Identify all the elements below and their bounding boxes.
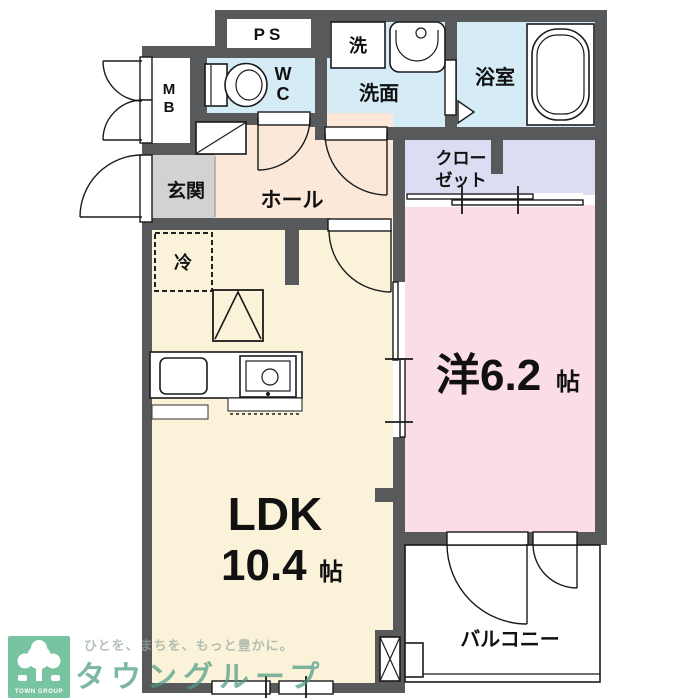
balcony-door-jamb-left <box>447 532 528 545</box>
wall-hall-bottom <box>142 218 330 230</box>
bathroom-door <box>445 60 456 115</box>
watermark-brand: タウングループ <box>75 661 325 694</box>
label-ldk: LDK <box>228 488 323 540</box>
label-bathroom: 浴室 <box>475 65 515 89</box>
shoe-cabinet <box>196 122 246 154</box>
mb-door-jamb-bottom <box>140 100 152 143</box>
wall-closet-divider <box>491 140 503 174</box>
label-balcony: バルコニー <box>460 628 560 651</box>
wall-right <box>595 10 607 545</box>
wall-mb-top <box>142 46 227 58</box>
label-washroom: 洗面 <box>359 82 399 105</box>
ldk-floor <box>152 218 393 683</box>
label-ldk-size: 10.4 <box>221 541 307 590</box>
label-mb-line1: M <box>163 81 176 98</box>
wash-basin <box>390 22 445 72</box>
washroom-door-jamb <box>325 127 387 140</box>
label-ldk-unit: 帖 <box>319 559 343 586</box>
wall-ldk-western-upper <box>393 127 405 282</box>
counter-side-shelf <box>152 405 208 419</box>
mb-door-swing-top <box>103 61 142 101</box>
bathtub <box>527 24 594 125</box>
watermark-logo-text: TOWN GROUP <box>15 688 63 695</box>
mb-door-swing-bottom <box>103 100 142 140</box>
label-mb-line2: B <box>164 99 175 116</box>
label-closet-line1: クロー <box>436 149 487 168</box>
entrance-door-jamb <box>140 155 152 222</box>
balcony-door-jamb-right <box>533 532 577 545</box>
label-hall: ホール <box>261 189 324 212</box>
balcony-outline <box>405 545 600 682</box>
watermark-tagline: ひとを、まちを、もっと豊かに。 <box>84 638 294 653</box>
label-closet-line2: ゼット <box>436 170 487 190</box>
label-wc-line2: C <box>277 84 290 104</box>
wall-ldk-western-lower <box>393 437 405 532</box>
counter-front <box>228 398 302 411</box>
label-entrance: 玄関 <box>167 179 205 202</box>
label-washer: 洗 <box>349 35 367 56</box>
balcony-unit-box <box>405 643 423 677</box>
label-western-room: 洋6.2 <box>436 351 541 400</box>
wall-stub-mid <box>375 488 405 502</box>
wall-kitchen-stub <box>285 228 299 285</box>
label-wc-line1: W <box>275 64 292 84</box>
water-heater-box <box>380 637 400 681</box>
watermark: TOWN GROUP ひとを、まちを、もっと豊かに。 タウングループ <box>8 636 325 698</box>
ldk-door-jamb <box>328 219 391 231</box>
toilet-fixture <box>205 64 267 107</box>
label-western-unit: 帖 <box>556 369 580 396</box>
floor-plan-image: PS M B W C 洗 洗面 浴室 玄関 ホール クロー ゼット 冷 洋6.2… <box>0 0 700 700</box>
label-ps: PS <box>254 25 285 44</box>
kitchen-sink <box>240 356 296 397</box>
label-fridge: 冷 <box>174 252 192 273</box>
wall-washroom-left <box>315 10 327 140</box>
mb-door-jamb-top <box>140 57 152 100</box>
wc-door-jamb <box>258 112 310 125</box>
stove <box>160 358 207 394</box>
town-group-logo: TOWN GROUP <box>8 636 70 698</box>
entrance-door-swing <box>80 155 142 217</box>
